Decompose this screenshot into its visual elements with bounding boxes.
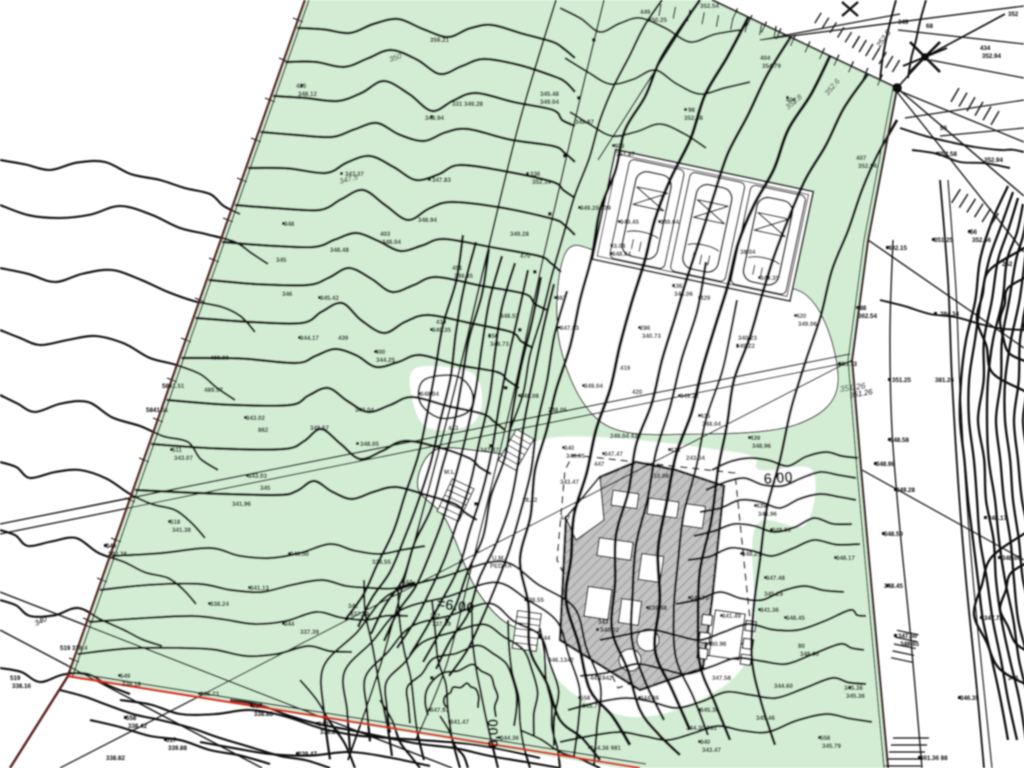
svg-text:348.96: 348.96 xyxy=(758,511,777,518)
svg-text:348.65: 348.65 xyxy=(900,641,919,648)
svg-text:344.60: 344.60 xyxy=(774,683,793,690)
svg-text:351.25: 351.25 xyxy=(934,237,953,244)
svg-text:349.04: 349.04 xyxy=(584,383,603,390)
svg-text:338.55: 338.55 xyxy=(372,559,391,566)
svg-text:M.L.: M.L. xyxy=(444,469,457,476)
svg-text:348.17: 348.17 xyxy=(836,555,855,562)
svg-text:403: 403 xyxy=(380,231,391,238)
svg-text:359.21: 359.21 xyxy=(430,37,449,44)
svg-text:98: 98 xyxy=(688,107,695,114)
svg-text:345.79: 345.79 xyxy=(822,743,841,750)
svg-text:348.94: 348.94 xyxy=(425,115,444,122)
svg-text:349.35: 349.35 xyxy=(454,273,473,280)
svg-text:339.47: 339.47 xyxy=(298,751,317,758)
svg-text:343.47: 343.47 xyxy=(702,747,721,754)
svg-text:402.15: 402.15 xyxy=(888,245,907,252)
svg-text:341.96: 341.96 xyxy=(232,501,251,508)
svg-text:362.54: 362.54 xyxy=(858,313,877,320)
svg-text:345.48: 345.48 xyxy=(540,91,559,98)
svg-text:352.94: 352.94 xyxy=(982,53,1001,60)
svg-text:340.50: 340.50 xyxy=(290,551,309,558)
svg-text:349.28: 349.28 xyxy=(510,231,529,238)
svg-text:340.38: 340.38 xyxy=(108,551,127,558)
svg-text:435: 435 xyxy=(670,447,681,454)
svg-text:348.00: 348.00 xyxy=(1002,555,1021,562)
svg-text:435: 435 xyxy=(700,413,711,420)
svg-text:349.20 439: 349.20 439 xyxy=(580,205,612,212)
svg-text:361.36 88: 361.36 88 xyxy=(920,755,948,762)
svg-text:345.79: 345.79 xyxy=(582,703,601,710)
svg-text:349.35: 349.35 xyxy=(432,327,451,334)
svg-text:342: 342 xyxy=(430,613,441,620)
svg-text:349.06: 349.06 xyxy=(798,321,817,328)
svg-text:347.48: 347.48 xyxy=(766,575,785,582)
svg-text:348.57: 348.57 xyxy=(310,425,329,432)
svg-text:344.17: 344.17 xyxy=(300,335,319,342)
svg-text:408: 408 xyxy=(614,143,625,150)
svg-text:18.42: 18.42 xyxy=(522,497,538,504)
svg-text:340.23: 340.23 xyxy=(738,335,757,342)
svg-text:348.04: 348.04 xyxy=(702,421,721,428)
svg-text:518: 518 xyxy=(170,519,181,526)
svg-text:439: 439 xyxy=(338,335,349,342)
svg-text:345.36: 345.36 xyxy=(846,693,865,700)
svg-text:338.89: 338.89 xyxy=(320,729,339,736)
svg-text:344.36: 344.36 xyxy=(640,695,659,702)
svg-text:344.30 981: 344.30 981 xyxy=(686,725,718,732)
svg-text:352.94: 352.94 xyxy=(984,157,1003,164)
svg-text:338.42: 338.42 xyxy=(128,723,147,730)
svg-text:549: 549 xyxy=(106,543,117,550)
svg-text:348.17: 348.17 xyxy=(988,515,1007,522)
svg-text:348.12: 348.12 xyxy=(298,91,317,98)
svg-text:6.00: 6.00 xyxy=(485,719,502,748)
svg-text:384.34: 384.34 xyxy=(940,311,959,318)
svg-text:243.04: 243.04 xyxy=(686,455,705,462)
svg-text:345.36: 345.36 xyxy=(700,707,719,714)
svg-text:348.94: 348.94 xyxy=(418,217,437,224)
svg-text:340.02: 340.02 xyxy=(600,627,619,634)
svg-text:336: 336 xyxy=(530,171,541,178)
svg-text:338.82: 338.82 xyxy=(106,755,125,762)
svg-text:341.47: 341.47 xyxy=(450,719,469,726)
svg-text:343: 343 xyxy=(598,619,609,626)
svg-text:348: 348 xyxy=(284,221,295,228)
svg-text:349.28: 349.28 xyxy=(896,487,915,494)
svg-text:348.00: 348.00 xyxy=(772,527,791,534)
svg-text:344: 344 xyxy=(284,621,295,628)
svg-text:349.04: 349.04 xyxy=(540,99,559,106)
svg-text:347.47: 347.47 xyxy=(480,447,499,454)
svg-text:339.88: 339.88 xyxy=(168,745,187,752)
svg-text:347.93: 347.93 xyxy=(430,707,449,714)
svg-text:558: 558 xyxy=(820,735,831,742)
svg-text:PEDRA: PEDRA xyxy=(490,563,512,570)
svg-text:347.83: 347.83 xyxy=(560,325,579,332)
svg-text:354.79: 354.79 xyxy=(762,63,781,70)
svg-text:449: 449 xyxy=(640,9,651,16)
svg-text:340.04: 340.04 xyxy=(355,407,374,414)
svg-text:348.04: 348.04 xyxy=(382,239,401,246)
svg-text:410.08: 410.08 xyxy=(650,473,669,480)
svg-text:447: 447 xyxy=(560,515,571,522)
svg-text:348.60: 348.60 xyxy=(800,651,819,658)
svg-text:345.42: 345.42 xyxy=(320,295,339,302)
svg-text:337.39: 337.39 xyxy=(432,621,451,628)
svg-text:352.66: 352.66 xyxy=(972,237,991,244)
svg-text:346: 346 xyxy=(1008,675,1019,682)
svg-text:341.36: 341.36 xyxy=(760,607,779,614)
svg-text:286: 286 xyxy=(640,325,651,332)
svg-text:340.70: 340.70 xyxy=(690,595,709,602)
svg-text:352.94: 352.94 xyxy=(858,163,877,170)
svg-text:337.39: 337.39 xyxy=(350,611,369,618)
svg-text:345.29: 345.29 xyxy=(764,591,783,598)
svg-text:345.46: 345.46 xyxy=(756,715,775,722)
svg-text:337: 337 xyxy=(252,703,263,710)
svg-text:862: 862 xyxy=(258,427,269,434)
svg-text:344.36 981: 344.36 981 xyxy=(590,745,622,752)
svg-text:344.36: 344.36 xyxy=(500,735,519,742)
svg-text:348.96: 348.96 xyxy=(752,443,771,450)
svg-text:352: 352 xyxy=(1008,11,1019,18)
svg-text:341.38: 341.38 xyxy=(172,527,191,534)
svg-text:549: 549 xyxy=(120,673,131,680)
svg-text:434: 434 xyxy=(980,45,991,52)
svg-text:349.04: 349.04 xyxy=(660,219,679,226)
svg-text:252.8: 252.8 xyxy=(874,28,893,50)
svg-text:340: 340 xyxy=(700,739,711,746)
svg-text:347.83: 347.83 xyxy=(432,177,451,184)
svg-text:429: 429 xyxy=(700,295,711,302)
svg-text:6.00: 6.00 xyxy=(763,469,793,488)
svg-text:331 349.28: 331 349.28 xyxy=(452,101,484,108)
svg-text:348.04: 348.04 xyxy=(612,251,631,258)
svg-text:349.22: 349.22 xyxy=(680,393,699,400)
svg-text:443: 443 xyxy=(448,425,459,432)
svg-text:348.73: 348.73 xyxy=(490,341,509,348)
svg-text:488: 488 xyxy=(856,305,867,312)
svg-text:352.58: 352.58 xyxy=(684,115,703,122)
svg-text:350.73: 350.73 xyxy=(838,361,857,368)
svg-text:404: 404 xyxy=(760,55,771,62)
svg-text:343.07: 343.07 xyxy=(174,455,193,462)
svg-text:338.55: 338.55 xyxy=(525,597,544,604)
svg-text:352.58: 352.58 xyxy=(938,151,957,158)
svg-text:249.04 439: 249.04 439 xyxy=(610,433,642,440)
svg-text:339.48: 339.48 xyxy=(648,605,667,612)
svg-text:348.05: 348.05 xyxy=(360,441,379,448)
svg-text:348.05: 348.05 xyxy=(566,453,585,460)
svg-text:348.21: 348.21 xyxy=(742,551,761,558)
svg-text:56: 56 xyxy=(970,229,977,236)
svg-text:352.14: 352.14 xyxy=(532,179,551,186)
svg-text:348.58: 348.58 xyxy=(890,437,909,444)
svg-text:343.02: 343.02 xyxy=(246,415,265,422)
svg-text:558: 558 xyxy=(126,715,137,722)
svg-text:345.36: 345.36 xyxy=(844,685,863,692)
svg-text:341.13: 341.13 xyxy=(250,585,269,592)
svg-text:367: 367 xyxy=(556,295,567,302)
svg-text:517: 517 xyxy=(166,737,177,744)
svg-text:68: 68 xyxy=(926,23,933,30)
svg-text:345: 345 xyxy=(276,257,287,264)
svg-text:341.49: 341.49 xyxy=(722,613,741,620)
svg-text:420: 420 xyxy=(632,389,643,396)
svg-text:347.58: 347.58 xyxy=(712,675,731,682)
svg-text:436: 436 xyxy=(672,283,683,290)
svg-text:345: 345 xyxy=(260,485,271,492)
svg-text:338.73: 338.73 xyxy=(200,691,219,698)
svg-text:5841.51: 5841.51 xyxy=(146,407,169,414)
svg-text:348.53: 348.53 xyxy=(500,313,519,320)
svg-text:346: 346 xyxy=(282,291,293,298)
svg-text:252: 252 xyxy=(1002,261,1013,268)
svg-text:340: 340 xyxy=(564,445,575,452)
svg-text:400: 400 xyxy=(375,349,386,356)
svg-text:80: 80 xyxy=(798,643,805,650)
svg-text:347.50: 347.50 xyxy=(898,633,917,640)
svg-text:499.99: 499.99 xyxy=(210,355,229,362)
svg-text:344: 344 xyxy=(402,579,413,586)
svg-text:470: 470 xyxy=(520,253,531,260)
svg-text:248.05: 248.05 xyxy=(548,407,567,414)
svg-text:346.35: 346.35 xyxy=(960,695,979,702)
svg-text:344.25: 344.25 xyxy=(376,357,395,364)
svg-text:2480.98: 2480.98 xyxy=(704,641,727,648)
svg-text:348.08: 348.08 xyxy=(520,393,539,400)
svg-text:347.47: 347.47 xyxy=(604,451,623,458)
svg-text:519 318.4: 519 318.4 xyxy=(60,645,88,652)
svg-text:340: 340 xyxy=(318,721,329,728)
svg-text:420: 420 xyxy=(796,313,807,320)
svg-text:349.35: 349.35 xyxy=(760,275,779,282)
svg-text:407: 407 xyxy=(856,155,867,162)
svg-text:348.98: 348.98 xyxy=(876,461,895,468)
svg-text:338.88: 338.88 xyxy=(254,711,273,718)
svg-text:352.54: 352.54 xyxy=(700,3,719,10)
svg-text:5841.51: 5841.51 xyxy=(162,383,185,390)
svg-text:U.M.: U.M. xyxy=(492,555,505,562)
svg-text:348.06: 348.06 xyxy=(674,291,693,298)
svg-text:44.1942: 44.1942 xyxy=(590,675,613,682)
svg-text:419: 419 xyxy=(620,365,631,372)
svg-text:343.47: 343.47 xyxy=(560,479,579,486)
svg-text:511: 511 xyxy=(172,447,183,454)
svg-text:38.04: 38.04 xyxy=(740,249,756,256)
svg-text:349.45: 349.45 xyxy=(620,219,639,226)
svg-text:381.26: 381.26 xyxy=(935,377,954,384)
svg-text:340.73: 340.73 xyxy=(642,333,661,340)
svg-text:343.03: 343.03 xyxy=(248,473,267,480)
svg-text:338.18: 338.18 xyxy=(122,681,141,688)
svg-text:439: 439 xyxy=(756,503,767,510)
svg-text:435: 435 xyxy=(296,83,307,90)
svg-text:519: 519 xyxy=(10,675,21,682)
svg-text:350.25: 350.25 xyxy=(648,17,667,24)
svg-text:348.48: 348.48 xyxy=(330,247,349,254)
svg-text:338.24: 338.24 xyxy=(210,601,229,608)
svg-text:342: 342 xyxy=(348,603,359,610)
svg-text:349: 349 xyxy=(898,19,909,26)
svg-text:351.87: 351.87 xyxy=(616,151,635,158)
svg-text:451: 451 xyxy=(452,265,463,272)
svg-text:351.25: 351.25 xyxy=(892,377,911,384)
svg-text:348.45: 348.45 xyxy=(786,615,805,622)
svg-text:56: 56 xyxy=(940,125,947,132)
svg-text:348.45: 348.45 xyxy=(884,583,903,590)
svg-text:349.87: 349.87 xyxy=(575,119,594,126)
svg-text:350: 350 xyxy=(488,333,499,340)
svg-text:348.04: 348.04 xyxy=(420,391,439,398)
svg-text:558: 558 xyxy=(580,695,591,702)
svg-text:439: 439 xyxy=(750,435,761,442)
svg-text:93.04: 93.04 xyxy=(610,243,626,250)
svg-text:348.50: 348.50 xyxy=(884,531,903,538)
svg-text:338.16: 338.16 xyxy=(12,683,31,690)
svg-text:346.1342: 346.1342 xyxy=(548,657,574,664)
svg-text:337.39: 337.39 xyxy=(300,629,319,636)
svg-text:489.57: 489.57 xyxy=(204,387,223,394)
svg-text:344: 344 xyxy=(540,635,551,642)
svg-text:447: 447 xyxy=(594,461,605,468)
svg-text:419: 419 xyxy=(436,319,447,326)
svg-text:349.22: 349.22 xyxy=(736,343,755,350)
svg-text:347.72: 347.72 xyxy=(984,615,1003,622)
